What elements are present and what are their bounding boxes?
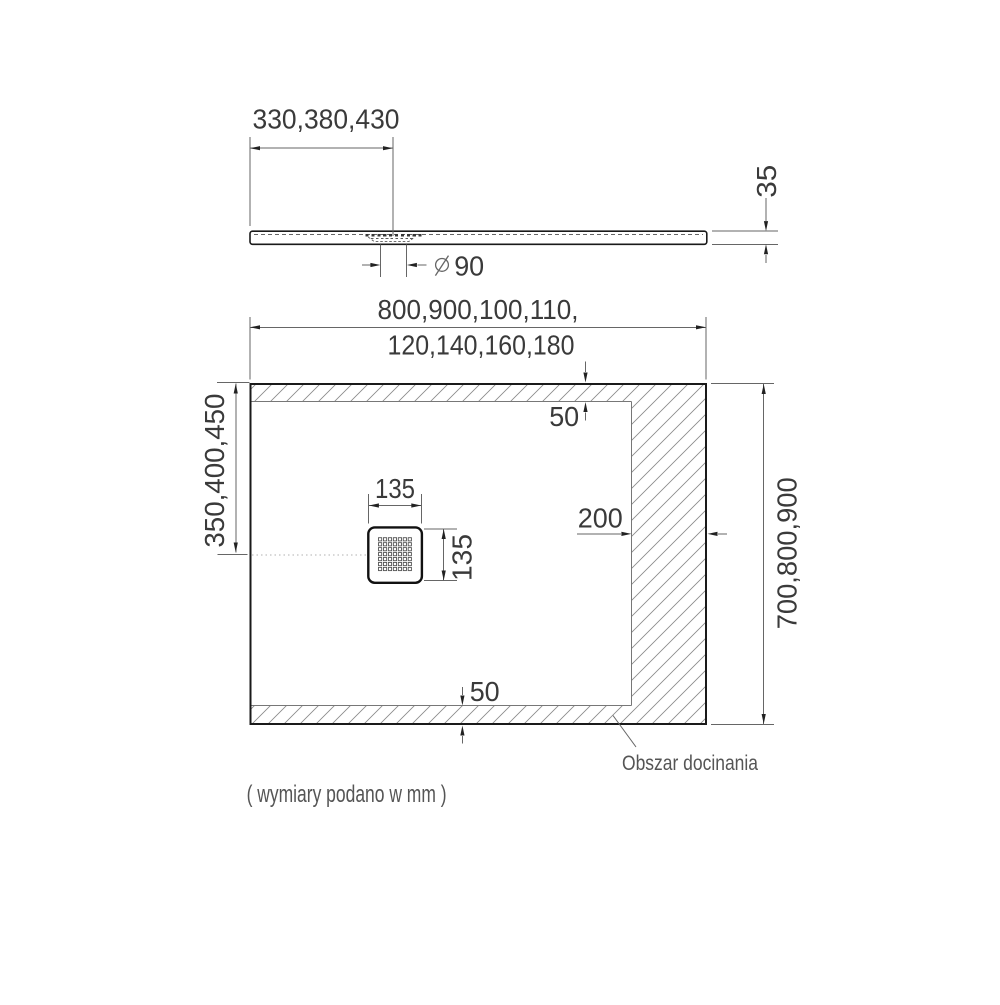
svg-text:700,800,900: 700,800,900 xyxy=(772,477,803,629)
svg-text:( wymiary podano w mm ): ( wymiary podano w mm ) xyxy=(247,781,447,808)
svg-text:350,400,450: 350,400,450 xyxy=(199,394,230,548)
svg-text:135: 135 xyxy=(447,534,478,581)
svg-text:330,380,430: 330,380,430 xyxy=(253,104,400,135)
svg-text:Obszar docinania: Obszar docinania xyxy=(622,752,758,775)
svg-text:35: 35 xyxy=(751,165,782,198)
svg-text:135: 135 xyxy=(375,473,415,504)
svg-text:50: 50 xyxy=(549,401,579,432)
svg-text:90: 90 xyxy=(454,251,484,282)
svg-text:50: 50 xyxy=(470,676,500,707)
svg-text:800,900,100,110,: 800,900,100,110, xyxy=(378,294,579,325)
svg-text:120,140,160,180: 120,140,160,180 xyxy=(388,330,575,361)
svg-text:200: 200 xyxy=(578,502,623,533)
